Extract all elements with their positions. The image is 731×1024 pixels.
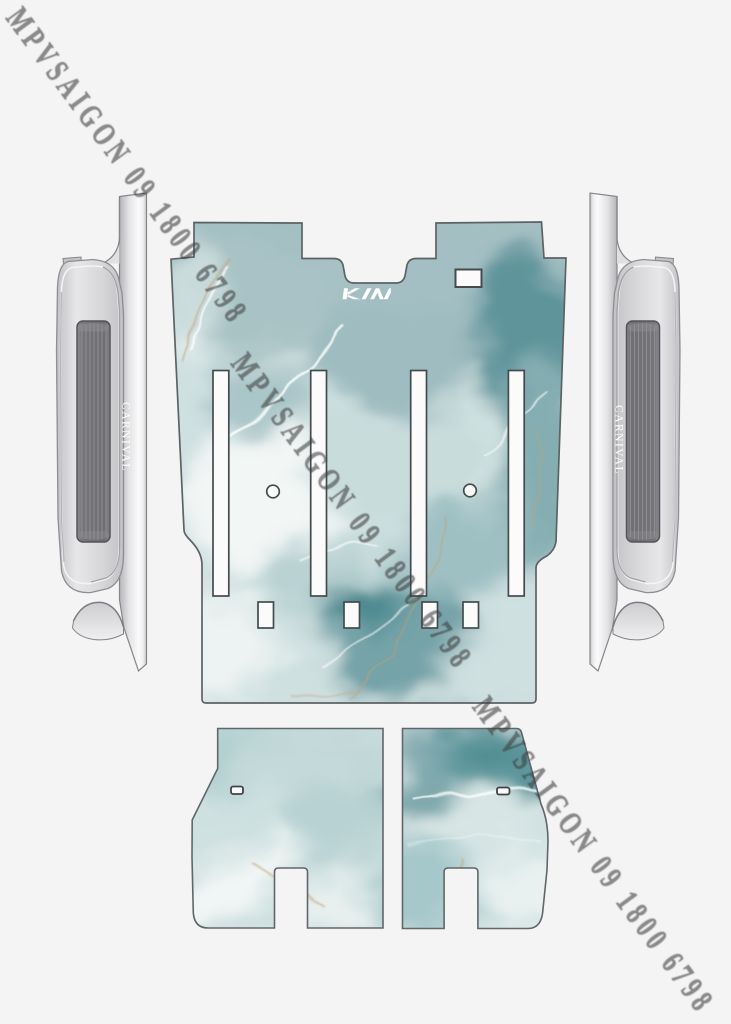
svg-text:CARNIVAL: CARNIVAL xyxy=(613,405,625,475)
svg-text:CARNIVAL: CARNIVAL xyxy=(119,402,131,472)
